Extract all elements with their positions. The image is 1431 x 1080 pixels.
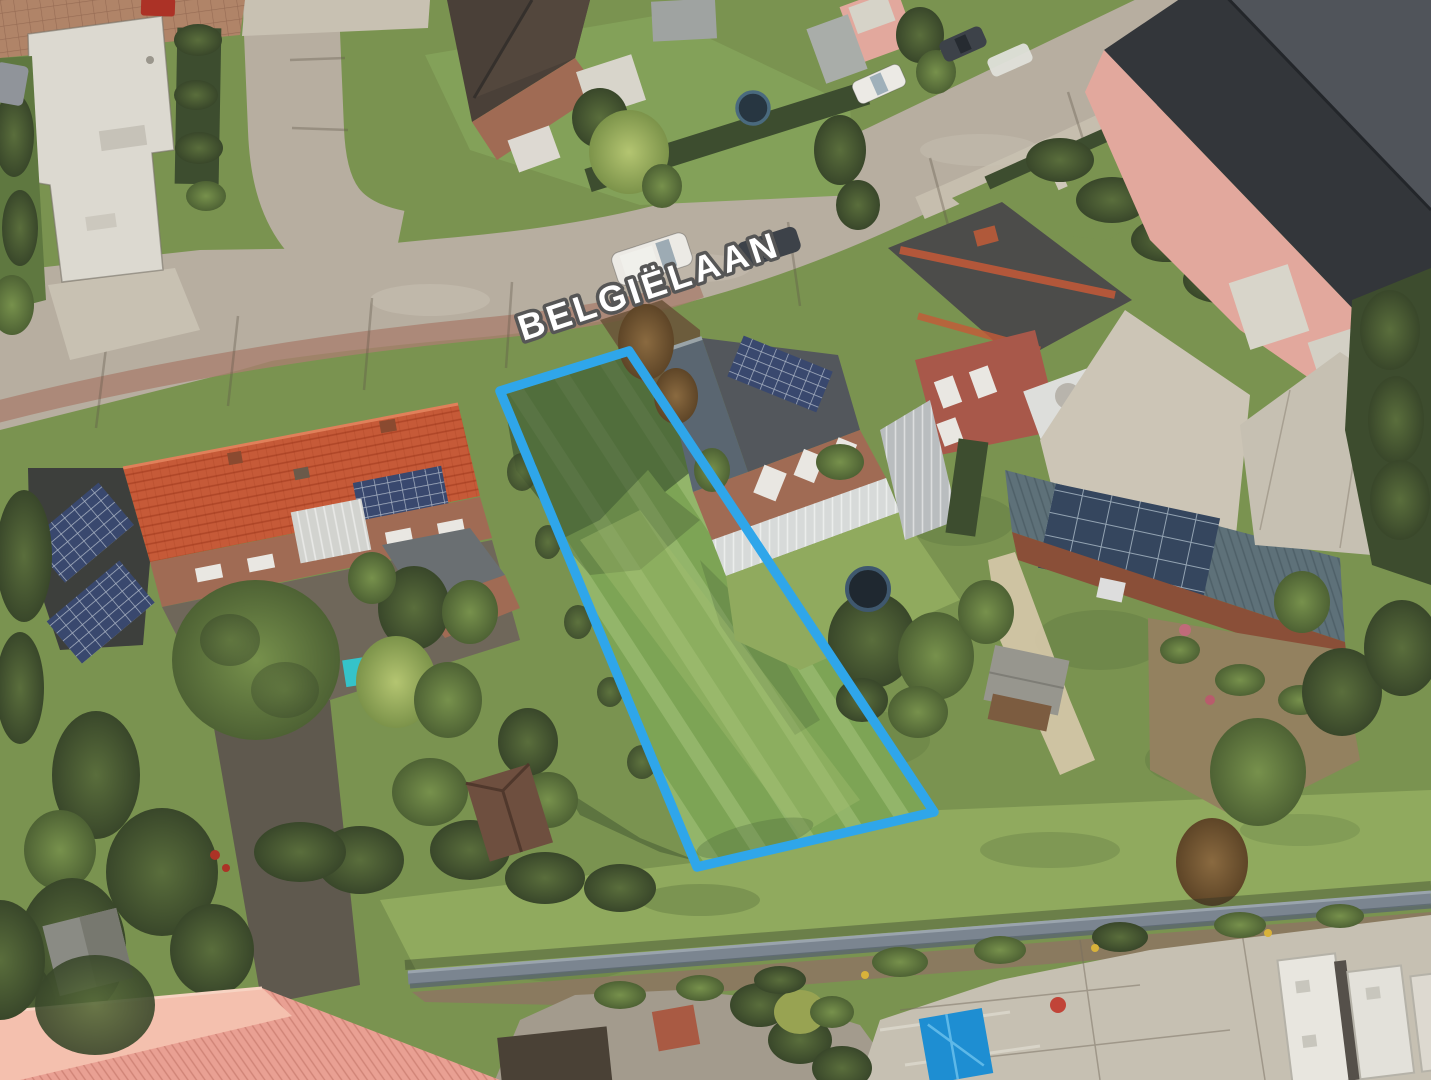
flowers: [1179, 624, 1191, 636]
trampoline-large: [847, 568, 889, 610]
aerial-scene: BELGIËLAAN: [0, 0, 1431, 1080]
aerial-photo: BELGIËLAAN: [0, 0, 1431, 1080]
brick-patch: [652, 1005, 700, 1052]
chimney: [146, 56, 154, 64]
chimney: [227, 451, 243, 465]
garage: [651, 0, 717, 42]
red-object: [1050, 997, 1066, 1013]
parked-car-red: [141, 0, 176, 17]
big-tree: [172, 580, 340, 740]
trampoline-small: [737, 92, 769, 124]
